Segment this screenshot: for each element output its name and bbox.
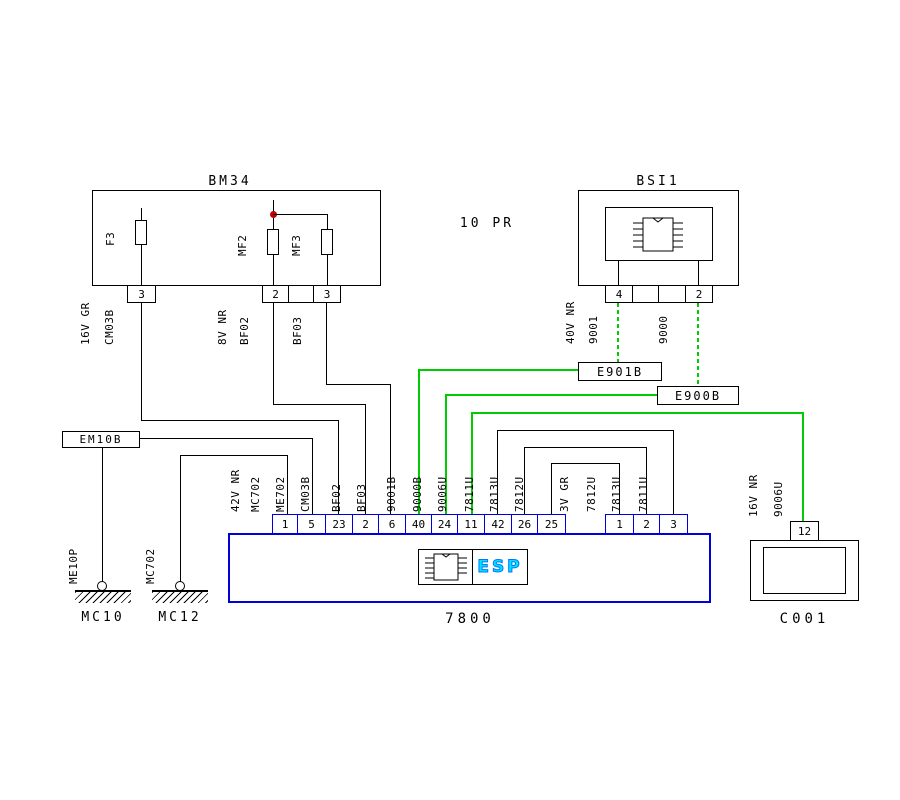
c001-title: C001 (752, 611, 857, 627)
esp-b-pin: 2 (633, 514, 660, 534)
harness-note: 10 PR (447, 216, 527, 231)
wire-segment (102, 447, 103, 582)
wire-segment (497, 430, 674, 431)
wire-segment (273, 214, 328, 215)
wire-9000-dashed (697, 303, 699, 387)
wire-segment (273, 303, 274, 404)
bsi1-pin-blank (632, 285, 659, 303)
wire-9001-dashed (617, 303, 619, 362)
wire-segment (312, 438, 313, 515)
wire-code-label: 7812U (585, 476, 598, 512)
wire-code-label: 9001B (385, 476, 398, 512)
wire-segment (472, 412, 804, 414)
wire-segment (419, 369, 579, 371)
wire-segment (141, 420, 339, 421)
esp-b-pin: 3 (659, 514, 688, 534)
ground-name: MC10 (70, 610, 136, 625)
fuse-mf3-label: MF3 (290, 235, 303, 256)
wire-code-label: 7812U (513, 476, 526, 512)
wire-segment (141, 303, 142, 421)
wire-segment (673, 430, 674, 515)
wire-code-label: BF03 (291, 317, 304, 346)
wire-segment (326, 384, 391, 385)
wire-gauge-label: 8V NR (216, 309, 229, 345)
bsi1-pin-4: 4 (605, 285, 633, 303)
wire-code-label: BF02 (330, 484, 343, 513)
c001-pin-12: 12 (790, 521, 819, 541)
wire-code-label: 7811U (463, 476, 476, 512)
ground-symbol-icon (75, 590, 131, 603)
bm34-title: BM34 (192, 174, 268, 189)
wire-code-label: MC702 (249, 476, 262, 512)
wire-segment (287, 455, 288, 515)
wire-segment (326, 303, 327, 384)
wire-code-label: 9000 (657, 316, 670, 345)
esp-a-pin: 24 (431, 514, 458, 534)
fuse-mf2-label: MF2 (236, 235, 249, 256)
wire-gauge-label: 42V NR (229, 469, 242, 512)
wiring-diagram: BM34 F3 MF2 MF3 3 2 3 16V GR CM03B 8V NR… (0, 0, 900, 800)
wire-code-label: BF03 (355, 484, 368, 513)
wire-segment (446, 394, 658, 396)
wire-segment (698, 260, 699, 286)
fuse-f3-label: F3 (104, 232, 117, 246)
wire-code-label: 9006U (772, 481, 785, 517)
wire-segment (551, 463, 620, 464)
esp-b-pin: 1 (605, 514, 634, 534)
fuse-icon (135, 220, 147, 245)
wire-code-label: 9001 (587, 316, 600, 345)
wire-segment (802, 412, 804, 522)
esp-a-pin: 42 (484, 514, 512, 534)
ground-wire-label: ME10P (67, 548, 80, 584)
wire-code-label: 7813U (610, 476, 623, 512)
wire-segment (551, 463, 552, 515)
bm34-pin-mf3: 3 (313, 285, 341, 303)
wire-code-label: 9006U (436, 476, 449, 512)
esp-a-pin: 40 (405, 514, 432, 534)
esp-unit-code: 7800 (415, 611, 525, 627)
bsi1-pin-2: 2 (685, 285, 713, 303)
fuse-icon (267, 229, 279, 255)
esp-a-pin: 1 (272, 514, 298, 534)
bm34-pin-f3: 3 (127, 285, 156, 303)
esp-a-pin: 5 (297, 514, 326, 534)
fuse-icon (321, 229, 333, 255)
splice-e900b: E900B (657, 386, 739, 405)
esp-chip-icon (423, 551, 469, 583)
wire-segment (180, 455, 181, 582)
wire-segment (140, 438, 312, 439)
bsi1-title: BSI1 (620, 174, 696, 189)
esp-a-pin: 2 (352, 514, 379, 534)
ground-symbol-icon (152, 590, 208, 603)
wire-gauge-label: 40V NR (564, 301, 577, 344)
wire-gauge-label: 16V NR (747, 474, 760, 517)
c001-inner-box (763, 547, 846, 594)
wire-code-label: 7811U (637, 476, 650, 512)
ground-wire-label: MC702 (144, 548, 157, 584)
esp-a-pin: 6 (378, 514, 406, 534)
wire-segment (618, 260, 619, 286)
bm34-pin-blank (288, 285, 314, 303)
chip-icon (630, 213, 686, 255)
wire-segment (273, 404, 366, 405)
esp-a-pin: 11 (457, 514, 485, 534)
wire-code-label: CM03B (299, 476, 312, 512)
wire-segment (524, 447, 647, 448)
ground-name: MC12 (147, 610, 213, 625)
wire-gauge-label: 3V GR (558, 476, 571, 512)
splice-em10b: EM10B (62, 431, 140, 448)
splice-e901b: E901B (578, 362, 662, 381)
bsi1-pin-blank (658, 285, 686, 303)
wire-code-label: 9000B (411, 476, 424, 512)
wire-segment (180, 455, 288, 456)
wire-gauge-label: 16V GR (79, 302, 92, 345)
wire-code-label: ME702 (274, 476, 287, 512)
wire-code-label: CM03B (103, 309, 116, 345)
bm34-pin-mf2: 2 (262, 285, 289, 303)
esp-a-pin: 23 (325, 514, 353, 534)
esp-a-pin: 26 (511, 514, 538, 534)
esp-a-pin: 25 (537, 514, 566, 534)
wire-code-label: 7813U (488, 476, 501, 512)
wire-code-label: BF02 (238, 317, 251, 346)
esp-unit-label: ESP (472, 549, 528, 585)
